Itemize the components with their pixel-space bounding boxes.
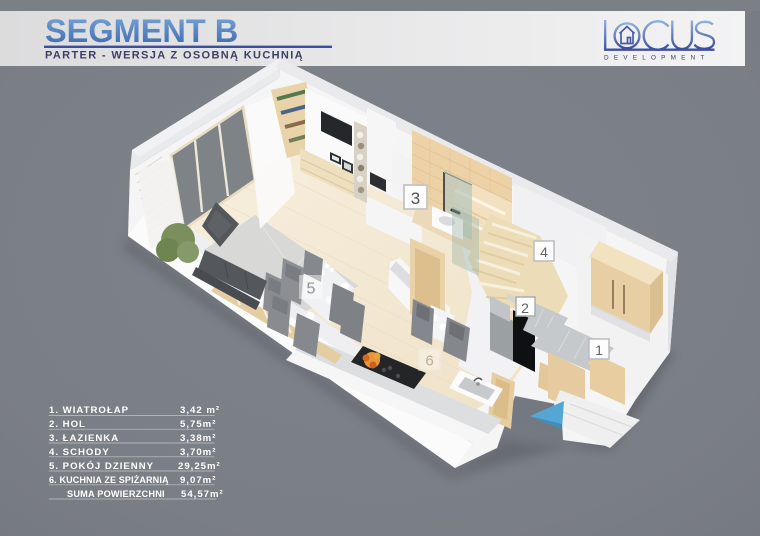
svg-text:5. POKÓJ DZIENNY: 5. POKÓJ DZIENNY xyxy=(49,460,154,472)
svg-text:5: 5 xyxy=(307,281,316,298)
svg-text:3,42 m²: 3,42 m² xyxy=(180,405,220,416)
svg-text:5,75m²: 5,75m² xyxy=(180,419,216,430)
svg-text:3,38m²: 3,38m² xyxy=(180,433,216,444)
svg-text:54,57m²: 54,57m² xyxy=(181,489,224,500)
svg-text:2. HOL: 2. HOL xyxy=(49,419,86,430)
svg-text:3: 3 xyxy=(411,189,420,208)
svg-text:SEGMENT B: SEGMENT B xyxy=(45,13,238,49)
svg-text:4: 4 xyxy=(540,244,548,260)
svg-text:6: 6 xyxy=(425,353,433,370)
svg-text:3. ŁAZIENKA: 3. ŁAZIENKA xyxy=(49,433,119,444)
svg-text:PARTER - WERSJA Z OSOBNĄ KUCHN: PARTER - WERSJA Z OSOBNĄ KUCHNIĄ xyxy=(45,50,304,62)
svg-text:2: 2 xyxy=(521,300,529,316)
svg-text:29,25m²: 29,25m² xyxy=(178,461,221,472)
svg-text:4. SCHODY: 4. SCHODY xyxy=(49,447,110,458)
svg-text:1: 1 xyxy=(595,342,603,358)
svg-text:3,70m²: 3,70m² xyxy=(180,447,216,458)
svg-text:SUMA POWIERZCHNI: SUMA POWIERZCHNI xyxy=(67,489,165,499)
svg-text:9,07m²: 9,07m² xyxy=(180,475,216,486)
svg-text:DEVELOPMENT: DEVELOPMENT xyxy=(604,55,710,62)
svg-text:6. KUCHNIA ZE SPIŻARNIĄ: 6. KUCHNIA ZE SPIŻARNIĄ xyxy=(49,475,169,485)
svg-text:1. WIATROŁAP: 1. WIATROŁAP xyxy=(49,405,129,416)
